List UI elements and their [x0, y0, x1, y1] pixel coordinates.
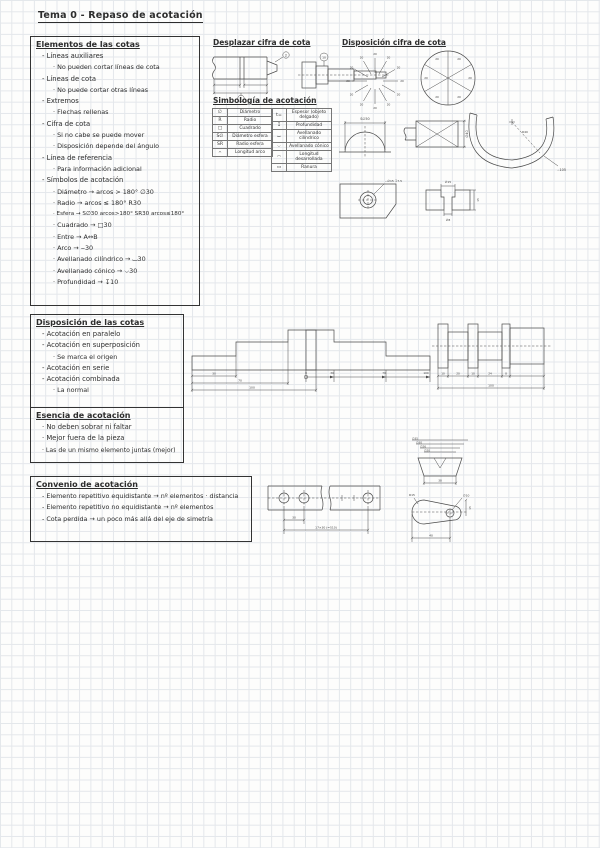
meaning-cell: Diámetro — [228, 109, 273, 117]
note-line: · Radio → arcos ≤ 180° R30 — [36, 198, 194, 209]
sketch-sphere-dome: S∅50 — [333, 112, 397, 162]
svg-text:10: 10 — [322, 55, 326, 59]
meaning-cell: Espesor (objeto delgado) — [287, 109, 332, 122]
svg-text:20: 20 — [457, 57, 461, 61]
meaning-cell: Longitud desarrollada — [287, 151, 332, 164]
svg-text:10: 10 — [441, 372, 445, 376]
svg-text:24: 24 — [488, 372, 492, 376]
svg-text:20: 20 — [397, 93, 401, 97]
meaning-cell: Avellanado cónico — [287, 143, 332, 151]
svg-text:20: 20 — [387, 103, 391, 107]
symbol-cell: ⌢ — [213, 149, 228, 157]
symbol-cell: ↧ — [272, 122, 287, 130]
note-line: - Línea de referencia — [36, 153, 194, 164]
svg-text:20: 20 — [468, 76, 472, 80]
box-esencia-title: Esencia de acotación — [36, 411, 178, 420]
svg-text:20: 20 — [387, 56, 391, 60]
note-line: · Diámetro → arcos > 180° ∅30 — [36, 187, 194, 198]
note-line: · Profundidad → ↧10 — [36, 277, 194, 288]
note-line: - Líneas auxiliares — [36, 51, 194, 62]
svg-text:20: 20 — [346, 79, 350, 83]
svg-text:100: 100 — [488, 384, 494, 388]
meaning-cell: Ranura — [287, 164, 332, 172]
note-line: · Mejor fuera de la pieza — [36, 433, 178, 444]
sketch-counterbore-section: ∅15 ∅8 15 — [420, 178, 482, 224]
symbol-table-right: t=Espesor (objeto delgado) ↧Profundidad … — [271, 108, 332, 172]
svg-text:30: 30 — [212, 372, 216, 376]
note-line: · La normal — [36, 385, 178, 396]
note-line: · Esfera → S∅30 arcos>180° SR30 arcos≤18… — [36, 209, 194, 220]
svg-text:20: 20 — [457, 95, 461, 99]
note-line: · Entre → A↔B — [36, 232, 194, 243]
meaning-cell: Avellanado cilíndrico — [287, 130, 332, 143]
note-line: - Elemento repetitivo no equidistante → … — [36, 502, 246, 513]
svg-text:20: 20 — [435, 95, 439, 99]
sketch-stacked-diameters: ∅35 ∅30 ∅26 ∅20 38 — [410, 436, 472, 490]
svg-text:∅15: ∅15 — [445, 180, 452, 184]
symbol-cell: ⌴ — [272, 130, 287, 143]
note-line: · Si no cabe se puede mover — [36, 130, 194, 141]
symbol-cell: ∅ — [213, 109, 228, 117]
note-line: - Líneas de cota — [36, 74, 194, 85]
symbol-cell: SR — [213, 141, 228, 149]
sketch-lost-dimension-bracket: R15 ∅10 40 15 — [408, 490, 476, 554]
page-title: Tema 0 - Repaso de acotación — [38, 10, 203, 23]
box-elementos-title: Elementos de las cotas — [36, 40, 194, 49]
svg-text:30: 30 — [292, 516, 296, 520]
meaning-cell: Cuadrado — [228, 125, 273, 133]
note-line: - Acotación en serie — [36, 363, 178, 374]
note-line: · Cuadrado → □30 — [36, 220, 194, 231]
note-line: - Acotación en superposición — [36, 340, 178, 351]
sketch-curved-strap: R40 ⌢105 — [456, 106, 568, 178]
svg-text:R40: R40 — [522, 130, 528, 134]
svg-text:38: 38 — [438, 479, 442, 483]
sketch-counterbore-plan: ⌴∅15 ↧7.5 — [336, 176, 416, 224]
sketch-repeated-holes-strip: 30 17×30 (=510) — [264, 478, 386, 538]
svg-text:20: 20 — [350, 93, 354, 97]
svg-text:20: 20 — [373, 106, 377, 110]
svg-text:20: 20 — [350, 66, 354, 70]
svg-text:40: 40 — [429, 534, 433, 538]
note-line: - Extremos — [36, 96, 194, 107]
symbol-cell: ⌵ — [272, 143, 287, 151]
note-line: - Cifra de cota — [36, 119, 194, 130]
svg-text:20: 20 — [373, 52, 377, 56]
svg-text:∅10: ∅10 — [463, 494, 470, 498]
svg-text:20: 20 — [360, 56, 364, 60]
note-line: - Cota perdida → un poco más allá del ej… — [36, 514, 246, 525]
box-esencia: Esencia de acotación · No deben sobrar n… — [30, 407, 184, 463]
meaning-cell: Profundidad — [287, 122, 332, 130]
box-disposicion: Disposición de las cotas - Acotación en … — [30, 314, 184, 408]
box-convenio-title: Convenio de acotación — [36, 480, 246, 489]
meaning-cell: Radio esfera — [228, 141, 273, 149]
svg-text:17×30 (=510): 17×30 (=510) — [315, 526, 337, 530]
svg-text:R15: R15 — [409, 493, 415, 497]
box-elementos: Elementos de las cotas - Líneas auxiliar… — [30, 36, 200, 306]
svg-text:30: 30 — [330, 371, 334, 375]
svg-text:∅8: ∅8 — [446, 218, 451, 222]
note-line: - Acotación combinada — [36, 374, 178, 385]
note-line: · Flechas rellenas — [36, 107, 194, 118]
note-line: · Las de un mismo elemento juntas (mejor… — [36, 445, 178, 456]
note-line: · Para información adicional — [36, 164, 194, 175]
svg-text:100: 100 — [423, 371, 429, 375]
svg-text:15: 15 — [476, 198, 480, 202]
svg-text:70: 70 — [382, 371, 386, 375]
note-line: · Se marca el origen — [36, 352, 178, 363]
meaning-cell: Radio — [228, 117, 273, 125]
sketch-superposed-dimensioning: 0 30 70 100 — [302, 322, 436, 398]
note-line: - Acotación en paralelo — [36, 329, 178, 340]
svg-text:⌢105: ⌢105 — [557, 168, 566, 172]
symbol-cell: S∅ — [213, 133, 228, 141]
meaning-cell: Longitud arco — [228, 149, 273, 157]
svg-text:∅20: ∅20 — [424, 448, 430, 452]
symbol-cell: ▭ — [272, 164, 287, 172]
meaning-cell: Diámetro esfera — [228, 133, 273, 141]
svg-text:70: 70 — [238, 379, 242, 383]
note-line: · No pueden cortar líneas de cota — [36, 62, 194, 73]
svg-text:20: 20 — [397, 66, 401, 70]
svg-text:⌴∅15 ↧7.5: ⌴∅15 ↧7.5 — [385, 179, 402, 183]
note-line: · No puede cortar otras líneas — [36, 85, 194, 96]
svg-text:100: 100 — [249, 386, 255, 390]
svg-text:20: 20 — [400, 79, 404, 83]
symbol-table-left: ∅Diámetro RRadio □Cuadrado S∅Diámetro es… — [212, 108, 273, 157]
heading-simbologia: Simbología de acotación — [213, 96, 317, 105]
note-line: · Avellanado cilíndrico → ⌴30 — [36, 254, 194, 265]
symbol-cell: R — [213, 117, 228, 125]
svg-text:20: 20 — [456, 372, 460, 376]
svg-text:2: 2 — [285, 53, 287, 57]
svg-text:10: 10 — [471, 372, 475, 376]
notebook-page: Tema 0 - Repaso de acotación Elementos d… — [0, 0, 600, 848]
symbol-cell: ◠ — [272, 151, 287, 164]
note-line: · Avellanado cónico → ⌵30 — [36, 266, 194, 277]
note-line: · Arco → ⌢30 — [36, 243, 194, 254]
note-line: - Símbolos de acotación — [36, 175, 194, 186]
svg-text:8: 8 — [505, 372, 507, 376]
symbol-cell: t= — [272, 109, 287, 122]
svg-text:0: 0 — [305, 371, 307, 375]
sketch-sector-circle: 20 20 20 20 20 20 — [416, 46, 480, 110]
svg-text:20: 20 — [360, 103, 364, 107]
heading-desplazar: Desplazar cifra de cota — [213, 38, 310, 47]
svg-text:15: 15 — [468, 506, 472, 510]
note-line: · No deben sobrar ni faltar — [36, 422, 178, 433]
note-line: · Disposición depende del ángulo — [36, 141, 194, 152]
svg-text:20: 20 — [435, 57, 439, 61]
symbol-cell: □ — [213, 125, 228, 133]
svg-text:S∅50: S∅50 — [360, 117, 369, 121]
note-line: - Elemento repetitivo equidistante → nº … — [36, 491, 246, 502]
box-disposicion-title: Disposición de las cotas — [36, 318, 178, 327]
box-convenio: Convenio de acotación - Elemento repetit… — [30, 476, 252, 542]
sketch-orientation-star: 20 20 20 20 20 20 20 20 20 20 20 20 — [342, 50, 408, 112]
svg-text:20: 20 — [424, 76, 428, 80]
sketch-chain-dimensioning: 10 20 10 24 8 100 — [432, 318, 570, 402]
